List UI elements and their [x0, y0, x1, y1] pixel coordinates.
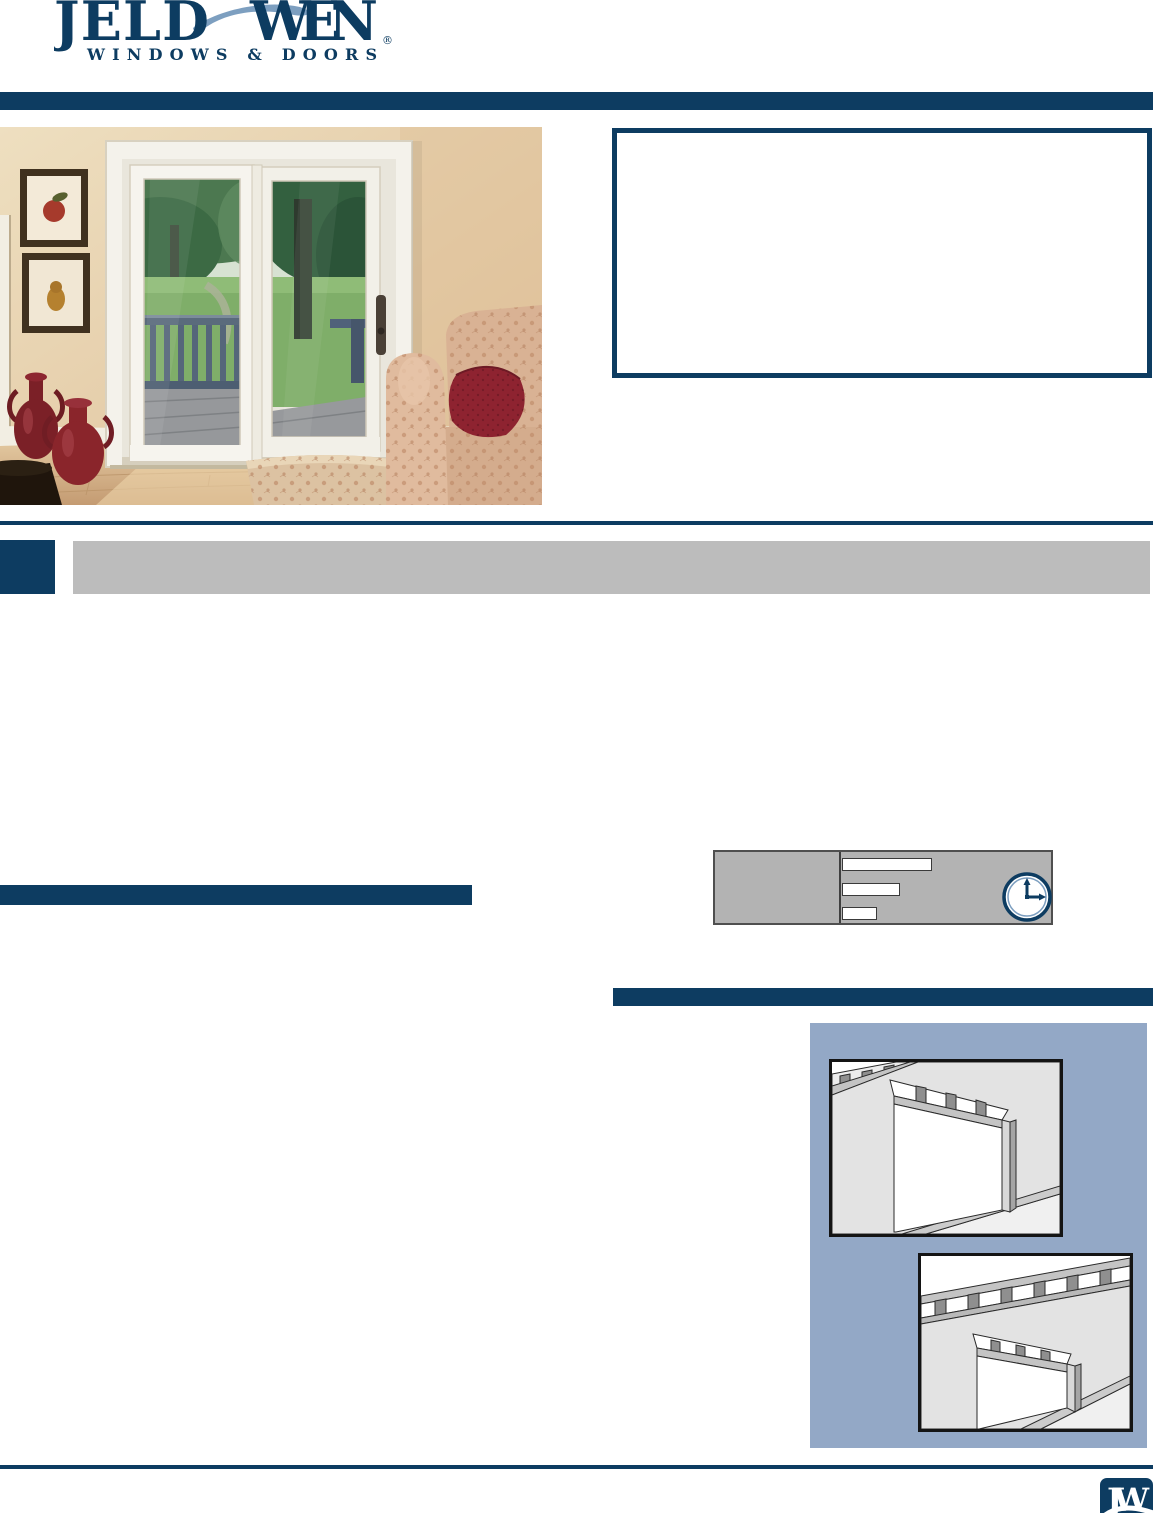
illustration-panel — [810, 1023, 1147, 1448]
brand-tagline: WINDOWS & DOORS — [86, 45, 377, 64]
blank-field-1 — [842, 858, 932, 871]
subsection-rule-left — [0, 885, 472, 905]
door-handle — [376, 295, 386, 355]
jw-monogram-logo: JW — [1100, 1478, 1153, 1513]
blank-field-2 — [842, 883, 900, 896]
wall-framing-door-opening-illustration — [918, 1253, 1133, 1432]
brand-logo: JELD WEN ® WINDOWS & DOORS — [54, 0, 399, 72]
section-index-square — [0, 540, 55, 594]
patio-door-living-room-photo — [0, 127, 542, 505]
callout-box — [612, 128, 1152, 378]
registered-mark: ® — [382, 34, 393, 47]
clock-icon — [1001, 871, 1053, 923]
spec-box-divider — [839, 852, 841, 923]
blank-field-3 — [842, 907, 877, 920]
header-rule-bar — [0, 92, 1153, 110]
ottoman — [246, 455, 406, 505]
subsection-rule-right — [613, 988, 1153, 1006]
section-divider-rule — [0, 521, 1153, 525]
document-page: JELD WEN ® WINDOWS & DOORS — [0, 0, 1153, 1513]
section-title-bar — [73, 541, 1150, 594]
wall-framing-rough-opening-illustration — [829, 1059, 1063, 1237]
spec-box — [713, 850, 1053, 925]
footer-rule — [0, 1465, 1153, 1469]
